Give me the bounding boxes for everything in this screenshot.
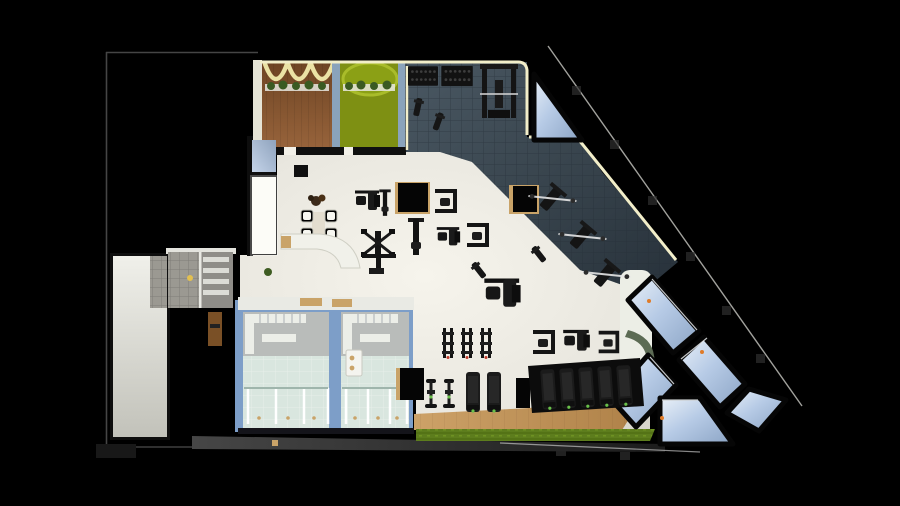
room-divider-wall (199, 252, 202, 308)
zone-left-service (110, 248, 236, 440)
basin-bowl (350, 366, 355, 371)
restroom-floor (168, 252, 199, 308)
backlit-panel-glow (250, 175, 278, 256)
lounge-chair (301, 210, 313, 222)
zone-studio-green (340, 62, 398, 155)
treadmill-icon (616, 365, 633, 406)
locker-top-wall-band (238, 297, 414, 310)
treadmill-icon (559, 368, 576, 409)
service-door-handle (210, 324, 220, 328)
treadmill-icon (597, 366, 614, 407)
wall-studio-divider-1 (332, 62, 340, 150)
studio-left-wall (253, 60, 262, 152)
basin-bowl (350, 356, 355, 361)
studio-door-gap-2 (344, 147, 353, 155)
studio-door-gap-1 (284, 147, 296, 155)
dumbbell-rack-icon (408, 66, 438, 85)
washbasin-unit (346, 350, 362, 376)
treadmill-icon (578, 367, 595, 408)
service-door (208, 312, 222, 346)
small-plant (264, 268, 272, 276)
treadmill-icon (487, 372, 501, 413)
bottom-left-corner-block (96, 444, 136, 458)
massage-room-window (252, 140, 276, 173)
reception-desk-wood-end (281, 236, 291, 248)
dumbbell-rack-icon (441, 66, 472, 86)
treadmill-icon (540, 369, 557, 410)
render-canvas (0, 0, 900, 506)
floor-plan-svg (0, 0, 900, 506)
turf-strip (416, 429, 655, 441)
column (513, 186, 537, 212)
hall-left-wall (247, 136, 278, 256)
restroom-light (187, 275, 193, 281)
bench-tray-2 (332, 299, 352, 307)
lounge-chair (325, 210, 337, 222)
shower-room-left-floor (243, 356, 329, 428)
zone-studio-wood (262, 62, 333, 150)
column (400, 368, 424, 400)
column-trim (396, 368, 400, 400)
locker-divider-wall (331, 312, 341, 428)
locker-bottom-wall (238, 428, 414, 434)
zone-locker-rooms (235, 297, 414, 434)
wall-studio-divider-2 (398, 62, 405, 150)
entry-door-marker (272, 440, 278, 446)
treadmill-icon (466, 372, 480, 413)
bench-tray-1 (300, 298, 322, 306)
column (398, 183, 428, 212)
column (516, 378, 530, 408)
wall-tv (294, 165, 308, 177)
corridor-tile-patch (150, 256, 167, 308)
studio-bottom-wall (256, 147, 406, 155)
